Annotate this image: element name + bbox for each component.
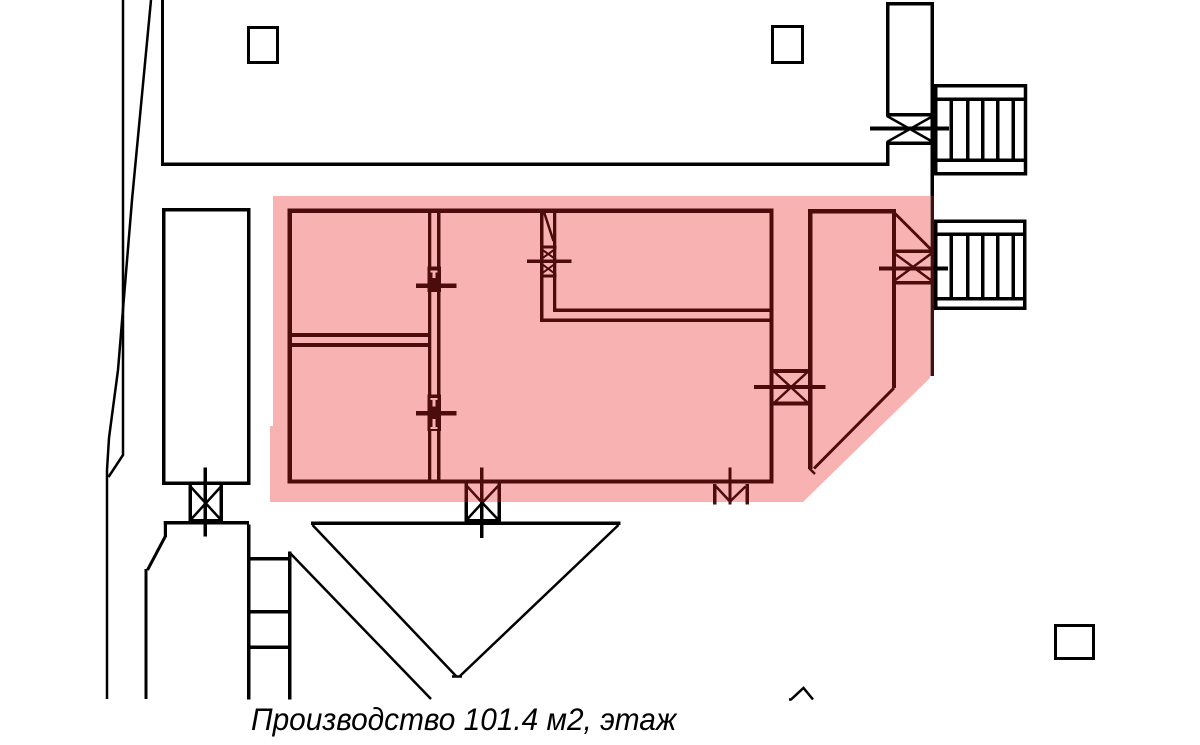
svg-text:Производство 101.4 м2, этаж: Производство 101.4 м2, этаж <box>251 702 678 737</box>
